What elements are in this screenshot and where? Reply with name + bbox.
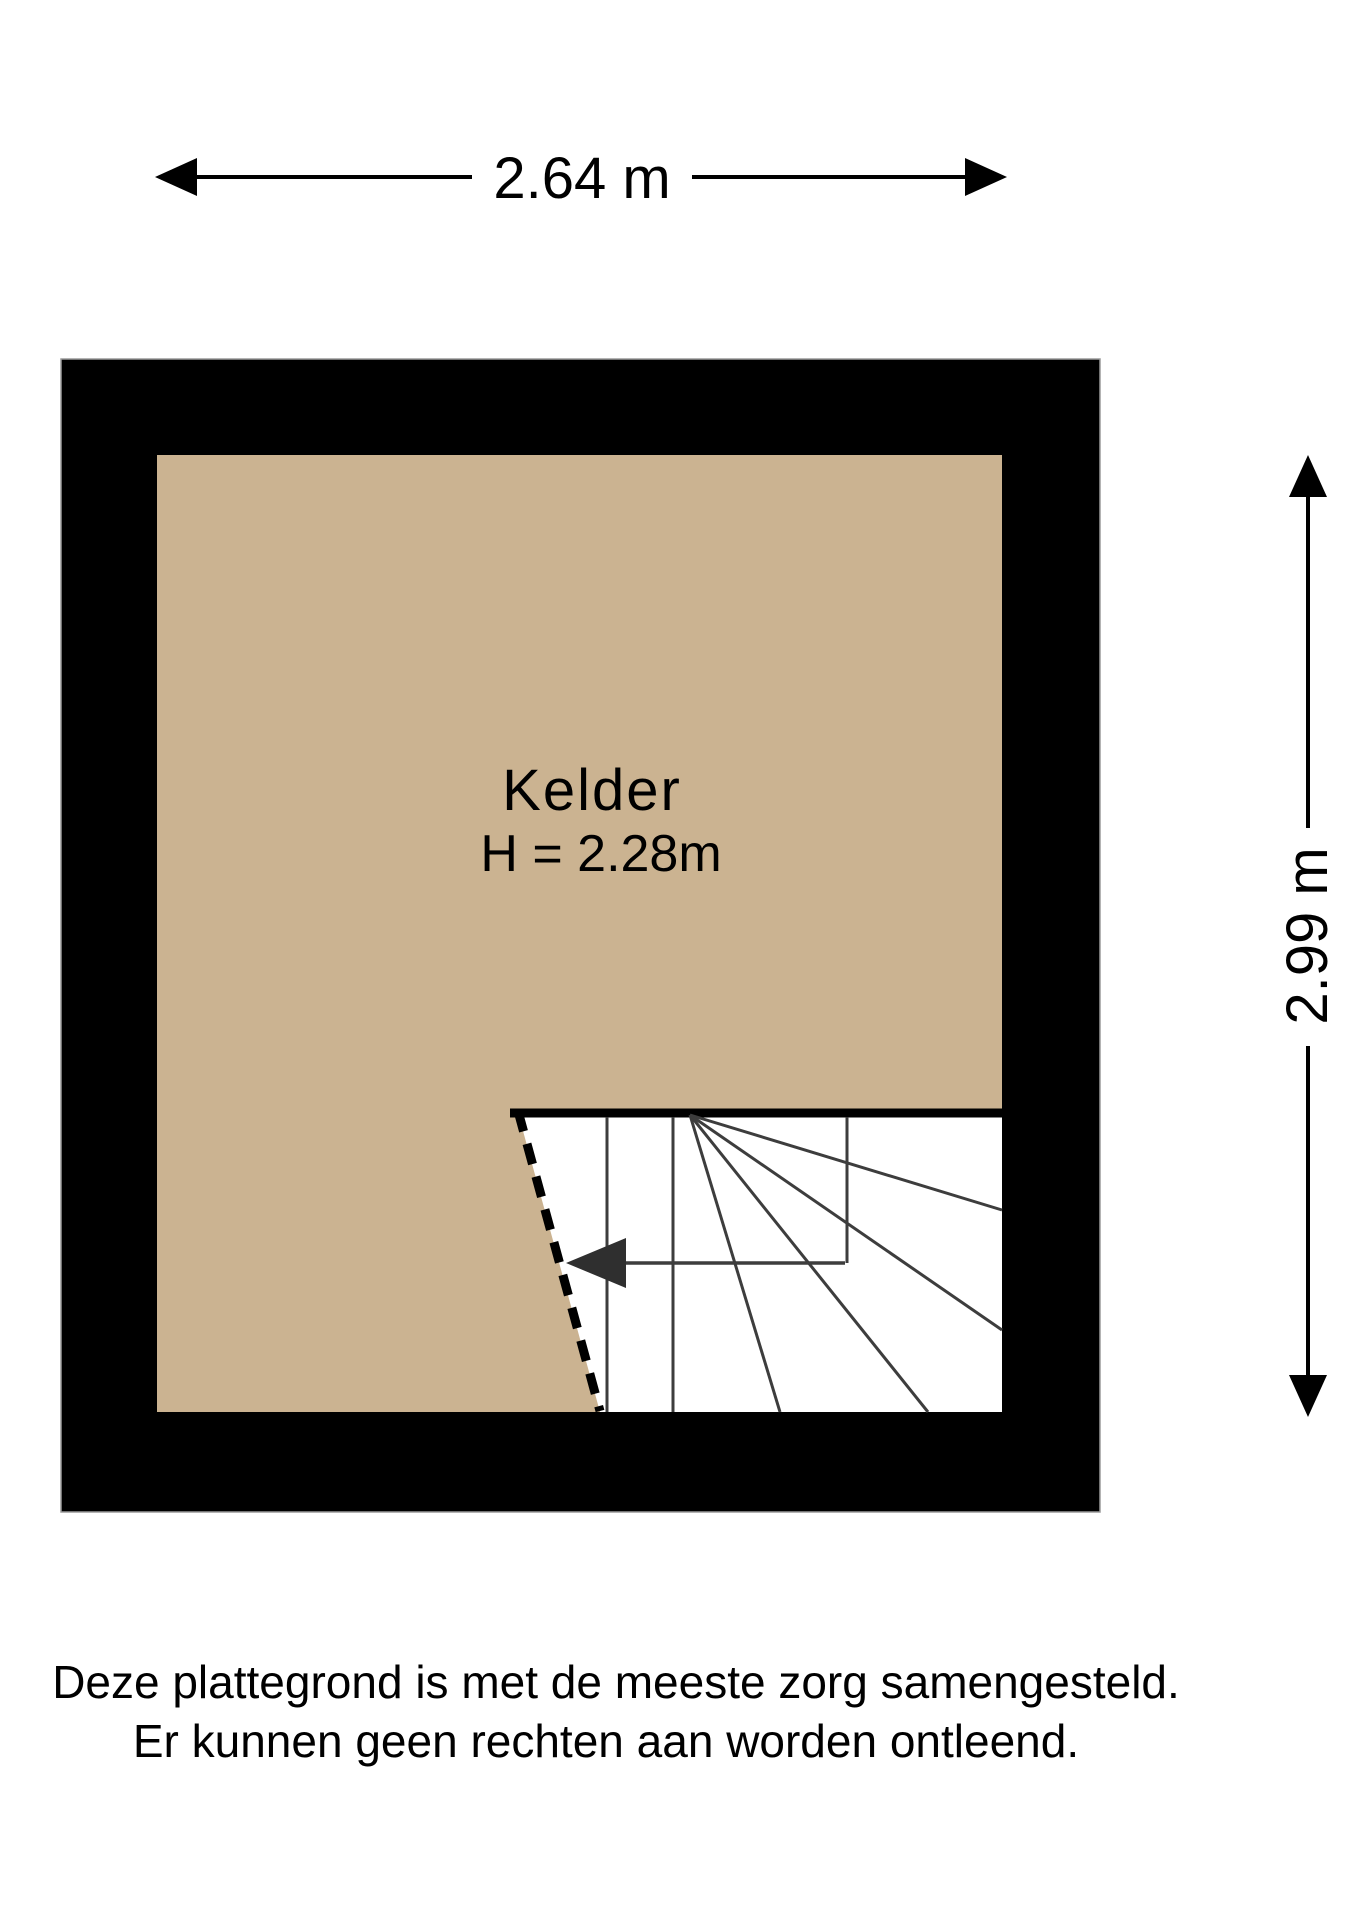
arrow-down-icon (1289, 1375, 1327, 1417)
arrow-right-icon (965, 158, 1007, 196)
arrow-left-icon (155, 158, 197, 196)
height-dimension-label: 2.99 m (1275, 847, 1340, 1024)
height-dimension: 2.99 m (1275, 455, 1340, 1417)
room-ceiling-height-label: H = 2.28m (480, 825, 721, 883)
disclaimer-line-2: Er kunnen geen rechten aan worden ontlee… (133, 1715, 1079, 1767)
floor-plan-svg: 2.64 m 2.99 m (0, 0, 1358, 1920)
width-dimension-label: 2.64 m (493, 146, 670, 211)
floorplan-page: 2.64 m 2.99 m (0, 0, 1358, 1920)
width-dimension: 2.64 m (155, 146, 1007, 211)
disclaimer-line-1: Deze plattegrond is met de meeste zorg s… (52, 1656, 1180, 1708)
arrow-up-icon (1289, 455, 1327, 497)
room-name-label: Kelder (502, 758, 682, 823)
